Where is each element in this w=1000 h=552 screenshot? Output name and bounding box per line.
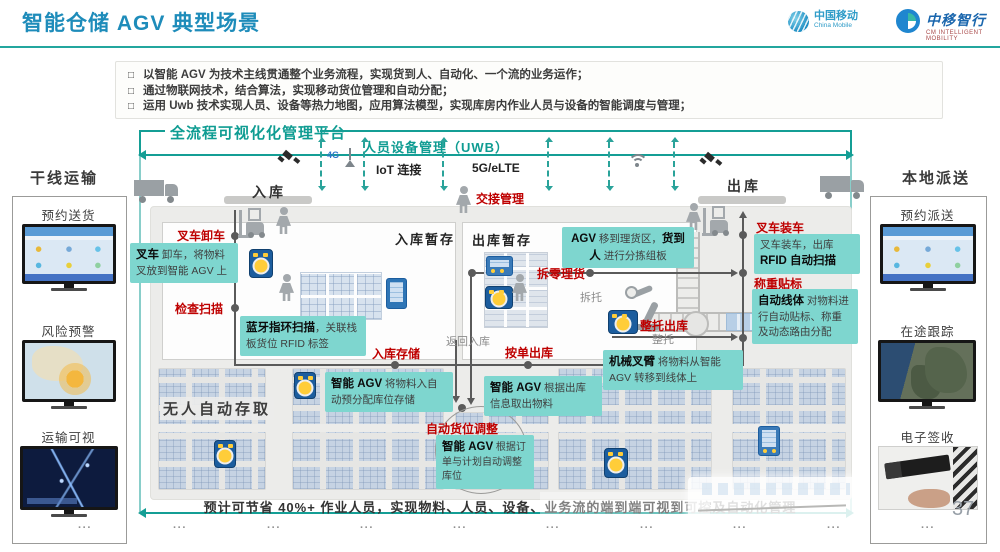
step-check-scan: 检查扫描 xyxy=(175,300,223,317)
inbound-truck-icon xyxy=(134,177,180,203)
left-item-3-label: 运输可视 xyxy=(12,427,125,446)
dark-map-screen xyxy=(20,446,118,510)
outbound-label: 出库 xyxy=(727,176,761,196)
monitor-booking-dispatch xyxy=(880,224,976,291)
page-title: 智能仓储 AGV 典型场景 xyxy=(22,7,260,37)
bullet-1: □以智能 AGV 为技术主线贯通整个业务流程，实现货到人、自动化、一个流的业务运… xyxy=(128,68,930,84)
dashed-link-arrow xyxy=(363,142,365,186)
platform-line-left xyxy=(140,130,165,132)
forklift-icon xyxy=(702,206,736,236)
callout-agv-retrieve: 智能 AGV 根据出库信息取出物料 xyxy=(484,376,602,416)
agv-icon xyxy=(214,440,236,468)
watermark-fade xyxy=(540,492,710,518)
callout-robot-arm: 机械叉臂 将物料从智能 AGV 转移到线体上 xyxy=(603,350,743,390)
right-column-title: 本地派送 xyxy=(902,167,970,188)
cmim-name: 中移智行 xyxy=(926,10,1000,30)
risk-map-screen xyxy=(22,340,116,402)
satellite-map-screen xyxy=(878,340,976,402)
uwb-label: 人员设备管理（UWB） xyxy=(363,137,509,156)
cmim-logo: 中移智行 CM INTELLIGENT MOBILITY xyxy=(926,10,1000,42)
ellipsis-mark: ··· xyxy=(360,522,374,534)
footer-arrow-left xyxy=(138,508,146,518)
callout-bluetooth-ring: 蓝牙指环扫描，关联栈板货位 RFID 标签 xyxy=(240,316,366,356)
dashed-link-arrow xyxy=(608,142,610,186)
monitor-en-route-tracking xyxy=(878,340,976,409)
note-pallet: 整托 xyxy=(652,331,674,347)
hand-image xyxy=(908,489,949,508)
monitor-booking-delivery xyxy=(22,224,116,291)
flow-node xyxy=(391,361,399,369)
ellipsis-mark: ··· xyxy=(921,522,935,534)
flow-arrow-down xyxy=(452,396,460,403)
bullet-3: □运用 Uwb 技术实现人员、设备等热力地图，应用算法模型，实现库房内作业人员与… xyxy=(128,99,930,115)
flow-arrow-down xyxy=(467,398,475,405)
tablet-icon xyxy=(386,278,407,309)
title-divider xyxy=(0,46,1000,48)
outbound-dock xyxy=(698,196,786,204)
4g-label: 4G xyxy=(327,150,339,160)
agv-icon xyxy=(485,286,513,309)
flow-node xyxy=(231,304,239,312)
flow-arrow-up xyxy=(739,211,747,218)
step-handover: 交接管理 xyxy=(476,190,524,207)
left-column-title: 干线运输 xyxy=(30,167,98,188)
antenna-tower-icon: 4G xyxy=(342,148,358,167)
dashed-link-arrow xyxy=(320,142,322,186)
step-unload: 叉车卸车 xyxy=(177,227,225,244)
monitor-transport-visibility xyxy=(20,446,118,517)
auto-storage-label: 无人自动存取 xyxy=(160,397,274,420)
ellipsis-mark: ··· xyxy=(546,522,560,534)
cmim-sub: CM INTELLIGENT MOBILITY xyxy=(926,30,1000,42)
worker-icon xyxy=(686,203,701,230)
note-return-inbound: 返回入库 xyxy=(446,333,490,349)
china-mobile-name: 中国移动 xyxy=(814,11,858,22)
flow-node xyxy=(739,231,747,239)
note-depalletize: 拆托 xyxy=(580,289,602,305)
forklift-icon xyxy=(238,208,272,238)
iot-label: IoT 连接 xyxy=(376,161,421,178)
callout-agv-store: 智能 AGV 将物料入自动预分配库位存储 xyxy=(325,372,453,412)
flow-arrow-right xyxy=(731,333,738,341)
bullet-2: □通过物联网技术，结合算法，实现移动货位管理和自动分配； xyxy=(128,84,930,100)
checkbox-icon: □ xyxy=(128,86,134,97)
china-mobile-logo-icon xyxy=(788,11,809,32)
callout-agv-goods-to-person: AGV 移到理货区，货到人 进行分拣组板 xyxy=(562,227,694,268)
agv-icon xyxy=(294,372,316,399)
worker-icon xyxy=(276,207,291,234)
ellipsis-mark: ··· xyxy=(733,522,747,534)
inbound-staging-label: 入库暂存 xyxy=(395,229,455,248)
china-mobile-logo: 中国移动 China Mobile xyxy=(814,11,858,30)
flow-node xyxy=(739,334,747,342)
dashed-link-arrow xyxy=(442,142,444,186)
dashed-link-arrow xyxy=(547,142,549,186)
callout-auto-line: 自动线体 对物料进行自动贴标、称重及动态路由分配 xyxy=(752,289,858,344)
left-item-2-label: 风险预警 xyxy=(12,321,125,340)
checkbox-icon: □ xyxy=(128,70,134,81)
agv-shuttle-icon xyxy=(758,426,780,456)
ellipsis-mark: ··· xyxy=(173,522,187,534)
tote-device-icon xyxy=(486,256,513,276)
app-screen xyxy=(22,224,116,284)
outbound-truck-icon xyxy=(820,173,866,199)
ellipsis-mark: ··· xyxy=(453,522,467,534)
flow-node xyxy=(524,361,532,369)
right-item-1-label: 预约派送 xyxy=(870,205,985,224)
platform-line-right xyxy=(320,130,852,132)
callout-forklift-unload: 叉车 卸车，将物料叉放到智能 AGV 上 xyxy=(130,243,238,283)
agv-icon xyxy=(604,448,628,478)
slide: 智能仓储 AGV 典型场景 中国移动 China Mobile 中移智行 CM … xyxy=(0,0,1000,552)
5g-label: 5G/eLTE xyxy=(472,161,520,175)
worker-icon xyxy=(279,274,294,301)
page-number: 37 xyxy=(952,498,974,521)
summary-bullets: □以智能 AGV 为技术主线贯通整个业务流程，实现货到人、自动化、一个流的业务运… xyxy=(115,61,943,119)
satellite-icon xyxy=(700,150,720,168)
agv-icon xyxy=(249,249,273,278)
dashed-link-arrow xyxy=(673,142,675,186)
callout-agv-slot-adjust: 智能 AGV 根据订单与计划自动调整库位 xyxy=(436,435,534,489)
ellipsis-mark: ··· xyxy=(640,522,654,534)
left-item-1-label: 预约送货 xyxy=(12,205,125,224)
ellipsis-mark: ··· xyxy=(827,522,841,534)
flow-node xyxy=(586,269,594,277)
flow-arrow-right xyxy=(731,269,738,277)
ellipsis-mark: ··· xyxy=(78,522,92,534)
wifi-icon xyxy=(628,154,644,168)
cmim-logo-icon xyxy=(896,9,920,33)
flow-line-outbound xyxy=(742,218,744,366)
satellite-icon xyxy=(278,148,298,166)
worker-icon xyxy=(512,274,527,301)
step-store-in: 入库存储 xyxy=(372,345,420,362)
flow-node xyxy=(739,269,747,277)
inbound-label: 入库 xyxy=(252,182,286,202)
right-item-2-label: 在途跟踪 xyxy=(870,321,985,340)
outbound-staging-label: 出库暂存 xyxy=(472,230,532,249)
right-item-3-label: 电子签收 xyxy=(870,427,985,446)
agv-icon xyxy=(608,310,638,334)
step-order-out: 按单出库 xyxy=(505,344,553,361)
callout-rfid-scan: 叉车装车，出库 RFID 自动扫描 xyxy=(754,234,860,274)
pallet-grid xyxy=(300,272,382,320)
bracket-left xyxy=(139,156,141,512)
checkbox-icon: □ xyxy=(128,101,134,112)
ellipsis-mark: ··· xyxy=(267,522,281,534)
china-mobile-sub: China Mobile xyxy=(814,22,858,30)
monitor-risk-warning xyxy=(22,340,116,409)
worker-icon xyxy=(456,186,471,213)
watermark-box xyxy=(688,477,860,525)
app-screen xyxy=(880,224,976,284)
